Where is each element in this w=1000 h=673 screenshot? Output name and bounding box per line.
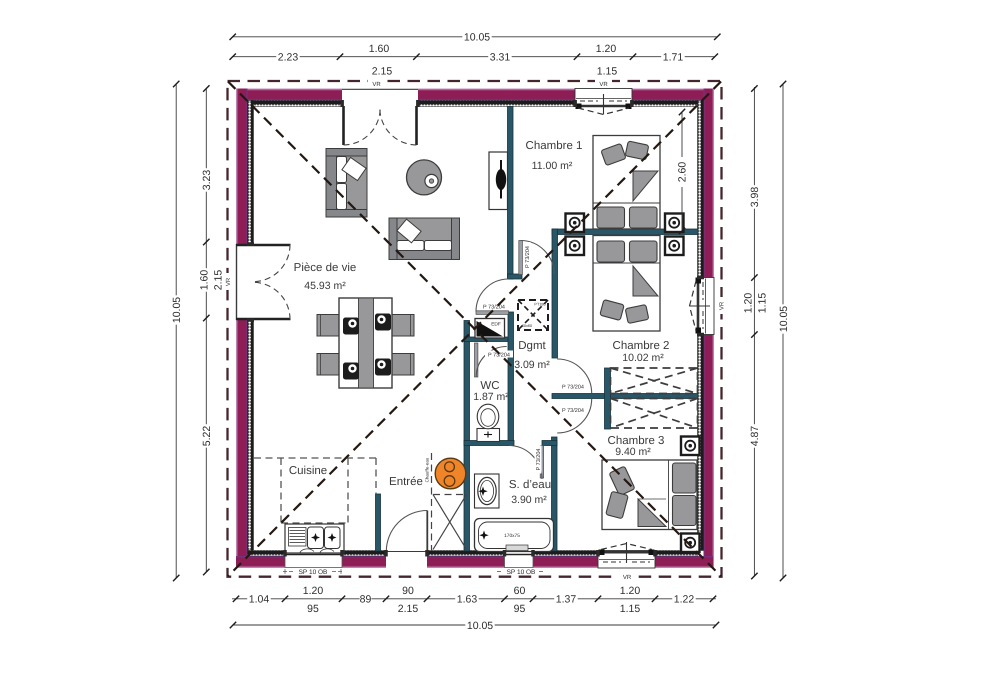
svg-text:89: 89: [360, 594, 372, 606]
svg-text:95: 95: [514, 603, 526, 615]
svg-text:Chauffe-eau: Chauffe-eau: [425, 457, 430, 482]
svg-text:1.71: 1.71: [663, 52, 684, 64]
svg-text:1.15: 1.15: [620, 603, 641, 615]
svg-text:S. d’eau: S. d’eau: [509, 479, 551, 491]
svg-text:1.37: 1.37: [556, 594, 577, 606]
svg-text:1.15: 1.15: [756, 293, 768, 314]
svg-text:PT180: PT180: [534, 303, 545, 307]
svg-text:9.40 m²: 9.40 m²: [615, 446, 651, 458]
svg-text:10.05: 10.05: [171, 297, 183, 323]
svg-text:1.20: 1.20: [742, 293, 754, 314]
svg-text:P 73/204: P 73/204: [562, 408, 584, 414]
svg-text:Dgmt: Dgmt: [518, 340, 546, 352]
svg-text:170x75: 170x75: [504, 533, 520, 539]
svg-text:3.09 m²: 3.09 m²: [514, 359, 550, 371]
svg-text:1.20: 1.20: [303, 585, 324, 597]
svg-text:10.05: 10.05: [778, 306, 790, 332]
svg-text:60x60: 60x60: [522, 324, 532, 328]
svg-text:1.22: 1.22: [674, 594, 695, 606]
svg-text:2.23: 2.23: [278, 52, 299, 64]
svg-text:1.60: 1.60: [369, 43, 390, 55]
svg-text:60: 60: [514, 585, 526, 597]
svg-text:1.15: 1.15: [597, 65, 618, 77]
svg-text:VR: VR: [225, 277, 232, 286]
svg-text:1.20: 1.20: [620, 585, 641, 597]
svg-text:P 73/204: P 73/204: [525, 246, 531, 268]
svg-text:3.90 m²: 3.90 m²: [511, 494, 547, 506]
svg-text:10.02 m²: 10.02 m²: [622, 352, 664, 364]
svg-text:Chambre 1: Chambre 1: [526, 140, 583, 152]
svg-text:3.31: 3.31: [490, 52, 511, 64]
svg-text:5.22: 5.22: [201, 426, 213, 447]
svg-text:1.04: 1.04: [249, 594, 270, 606]
svg-text:VR: VR: [719, 301, 726, 310]
svg-text:VR: VR: [623, 574, 632, 581]
svg-text:1.87 m²: 1.87 m²: [473, 391, 509, 403]
svg-text:Entrée: Entrée: [389, 476, 423, 488]
svg-text:P 73/204: P 73/204: [562, 385, 584, 391]
svg-text:P 73/204: P 73/204: [483, 305, 505, 311]
svg-text:90: 90: [402, 585, 414, 597]
svg-text:1.63: 1.63: [457, 594, 478, 606]
svg-text:Cuisine: Cuisine: [289, 465, 327, 477]
svg-text:Chambre 2: Chambre 2: [613, 340, 670, 352]
svg-text:95: 95: [307, 603, 319, 615]
svg-text:4.87: 4.87: [749, 426, 761, 447]
svg-text:11.00 m²: 11.00 m²: [532, 160, 573, 172]
svg-text:SP 10 OB: SP 10 OB: [299, 569, 328, 576]
svg-text:P 73/204: P 73/204: [536, 449, 542, 471]
svg-text:1.20: 1.20: [596, 43, 617, 55]
svg-text:45.93 m²: 45.93 m²: [304, 280, 346, 292]
svg-text:2.60: 2.60: [677, 162, 689, 183]
svg-text:Pièce de vie: Pièce de vie: [294, 262, 357, 274]
svg-text:2.15: 2.15: [372, 65, 393, 77]
svg-text:SP 10 OB: SP 10 OB: [507, 569, 536, 576]
svg-text:2.15: 2.15: [398, 603, 419, 615]
svg-text:EDF: EDF: [491, 322, 501, 328]
svg-text:3.23: 3.23: [201, 170, 213, 191]
svg-text:2.15: 2.15: [212, 270, 224, 291]
svg-text:10.05: 10.05: [467, 620, 493, 632]
svg-text:VR: VR: [372, 81, 381, 88]
svg-text:10.05: 10.05: [464, 32, 490, 44]
svg-text:3.98: 3.98: [749, 187, 761, 208]
svg-text:VR: VR: [599, 81, 608, 88]
svg-text:1.60: 1.60: [198, 270, 210, 291]
